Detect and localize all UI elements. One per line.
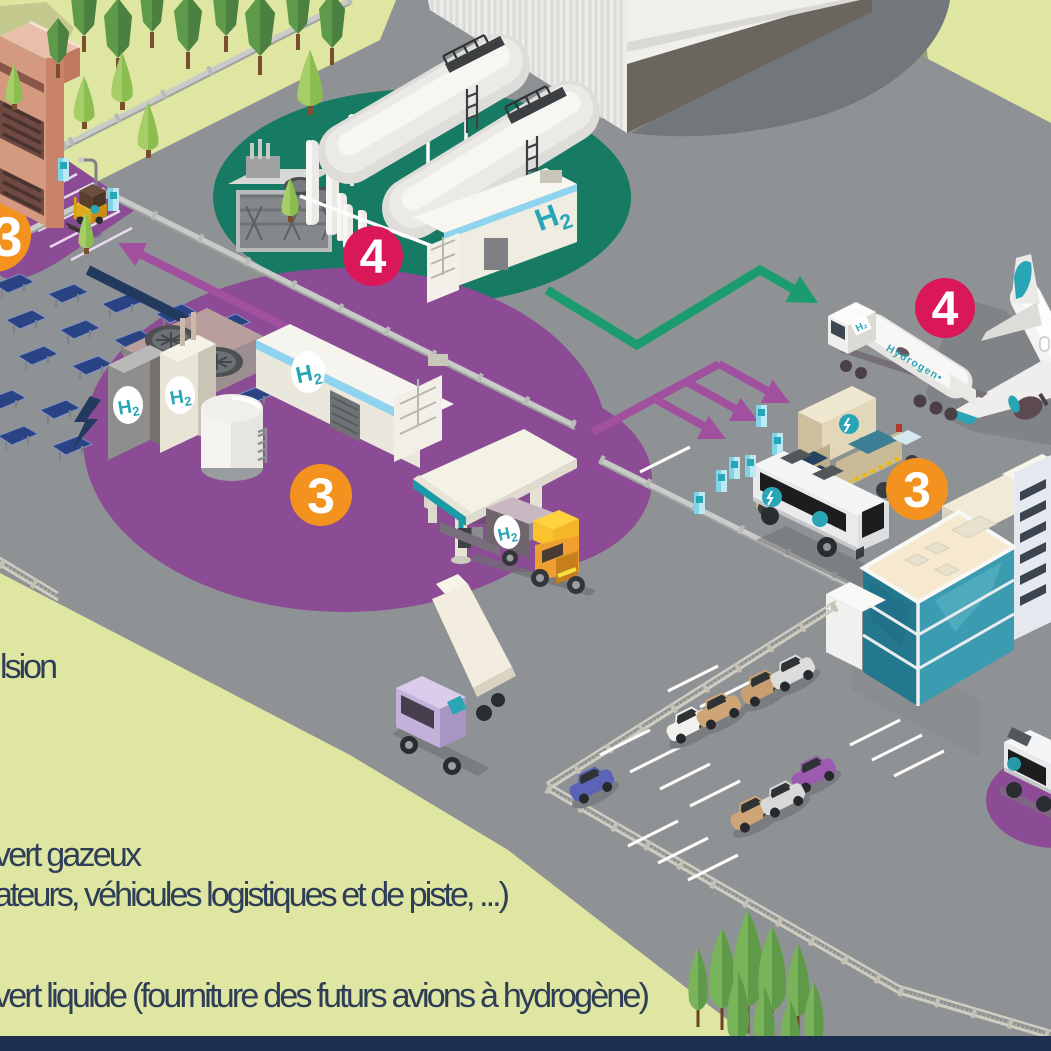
svg-text:4: 4	[932, 283, 959, 336]
svg-text:ateurs, véhicules logistiques: ateurs, véhicules logistiques et de pist…	[0, 876, 510, 914]
svg-text:vert gazeux: vert gazeux	[0, 836, 142, 874]
svg-text:3: 3	[903, 462, 931, 518]
svg-text:3: 3	[307, 468, 335, 524]
svg-text:4: 4	[360, 231, 387, 284]
svg-text:lsion: lsion	[0, 648, 58, 686]
svg-text:3: 3	[0, 205, 23, 268]
svg-text:vert liquide (fourniture des f: vert liquide (fourniture des futurs avio…	[0, 977, 650, 1015]
